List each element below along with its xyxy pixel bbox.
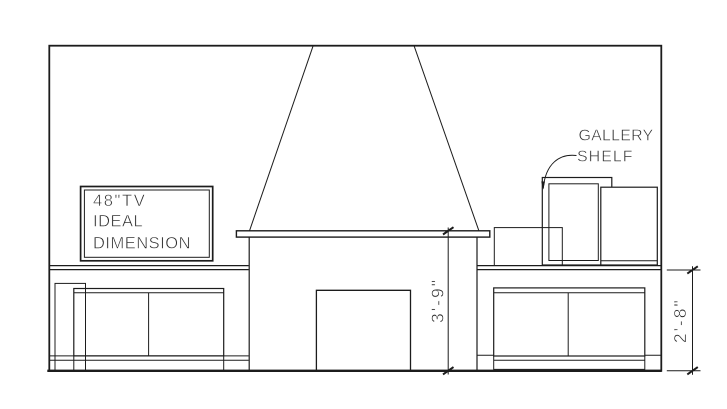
svg-text:2'-8": 2'-8"	[670, 298, 690, 343]
svg-text:SHELF: SHELF	[577, 149, 634, 166]
svg-text:DIMENSION: DIMENSION	[93, 235, 191, 253]
svg-text:48"TV: 48"TV	[93, 192, 146, 210]
svg-text:3'-9": 3'-9"	[428, 278, 448, 323]
svg-text:GALLERY: GALLERY	[579, 128, 654, 145]
svg-text:IDEAL: IDEAL	[93, 213, 143, 231]
